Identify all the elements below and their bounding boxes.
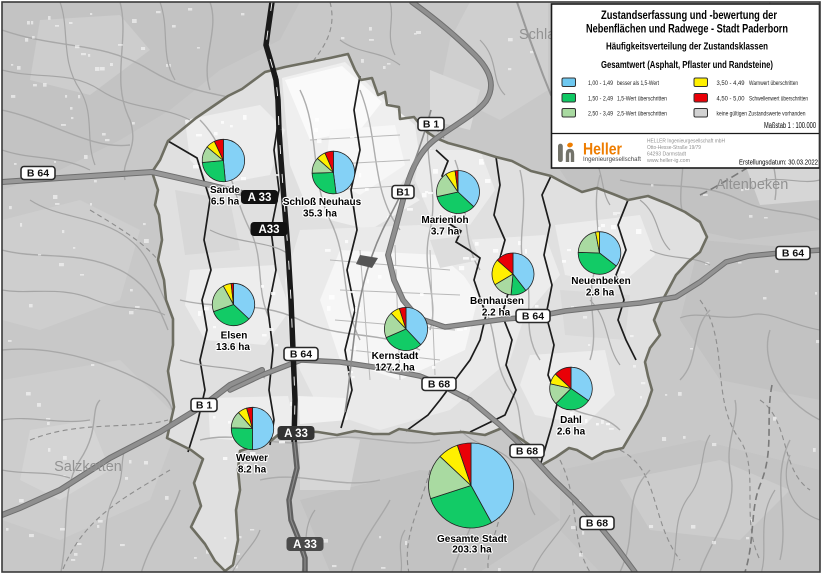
svg-text:35.3 ha: 35.3 ha — [303, 209, 337, 220]
svg-text:Dahl: Dahl — [560, 415, 582, 426]
svg-text:Häufigkeitsverteilung der Zust: Häufigkeitsverteilung der Zustandsklasse… — [606, 42, 768, 53]
svg-text:keine gültigen Zustandswerte v: keine gültigen Zustandswerte vorhanden — [717, 111, 806, 118]
svg-text:8.2 ha: 8.2 ha — [238, 465, 267, 476]
svg-text:3,50 - 4,49: 3,50 - 4,49 — [717, 80, 745, 87]
svg-text:2,50 - 3,49: 2,50 - 3,49 — [588, 111, 613, 118]
svg-text:Wewer: Wewer — [236, 453, 268, 464]
svg-text:B 64: B 64 — [782, 248, 804, 260]
svg-text:B 68: B 68 — [428, 379, 450, 391]
svg-text:B 64: B 64 — [522, 311, 544, 323]
svg-text:B 68: B 68 — [586, 518, 608, 530]
svg-text:Sande: Sande — [210, 185, 240, 196]
svg-text:Otto-Hesse-Straße 19/79: Otto-Hesse-Straße 19/79 — [647, 145, 701, 151]
svg-text:1,00 - 1,49: 1,00 - 1,49 — [588, 80, 613, 87]
svg-text:2,5-Wert überschritten: 2,5-Wert überschritten — [617, 111, 667, 118]
svg-text:B 1: B 1 — [423, 119, 440, 131]
svg-text:A33: A33 — [258, 224, 279, 236]
svg-text:B 64: B 64 — [27, 168, 49, 180]
svg-text:B1: B1 — [396, 187, 410, 199]
svg-text:64293 Darmstadt: 64293 Darmstadt — [647, 152, 686, 158]
svg-text:B 1: B 1 — [196, 400, 213, 412]
svg-text:Ingenieurgesellschaft: Ingenieurgesellschaft — [583, 157, 641, 163]
svg-text:B 68: B 68 — [516, 446, 538, 458]
svg-text:Gesamte Stadt: Gesamte Stadt — [437, 534, 508, 545]
svg-text:1,50 - 2,49: 1,50 - 2,49 — [588, 96, 613, 103]
svg-text:1,5-Wert überschritten: 1,5-Wert überschritten — [617, 96, 667, 103]
svg-text:Salzkotten: Salzkotten — [54, 459, 122, 475]
svg-text:3.7 ha: 3.7 ha — [431, 227, 460, 238]
svg-text:4,50 - 5,00: 4,50 - 5,00 — [717, 96, 745, 103]
svg-text:Maßstab 1 : 100.000: Maßstab 1 : 100.000 — [764, 121, 816, 130]
svg-text:besser als 1,5-Wert: besser als 1,5-Wert — [617, 80, 659, 87]
svg-text:Warnwert überschritten: Warnwert überschritten — [749, 80, 798, 87]
svg-text:Nebenflächen und Radwege - Sta: Nebenflächen und Radwege - Stadt Paderbo… — [586, 24, 788, 36]
svg-text:Benhausen: Benhausen — [470, 296, 524, 307]
svg-text:2.8 ha: 2.8 ha — [586, 288, 615, 299]
svg-text:HELLER Ingenieurgesellschaft m: HELLER Ingenieurgesellschaft mbH — [647, 139, 725, 145]
svg-text:B 64: B 64 — [290, 349, 312, 361]
svg-text:A 33: A 33 — [293, 539, 317, 551]
svg-text:Neuenbeken: Neuenbeken — [571, 276, 630, 287]
svg-text:www.heller-ig.com: www.heller-ig.com — [646, 158, 690, 164]
svg-text:2.6 ha: 2.6 ha — [557, 427, 586, 438]
svg-text:Schloß Neuhaus: Schloß Neuhaus — [283, 197, 362, 208]
svg-text:Zustandserfassung und -bewertu: Zustandserfassung und -bewertung der — [601, 10, 777, 22]
svg-text:Gesamtwert (Asphalt, Pflaster: Gesamtwert (Asphalt, Pflaster und Randst… — [601, 60, 773, 71]
svg-text:Erstellungsdatum: 30.03.2022: Erstellungsdatum: 30.03.2022 — [739, 158, 818, 167]
svg-text:Altenbeken: Altenbeken — [716, 177, 789, 193]
svg-text:Kernstadt: Kernstadt — [372, 351, 419, 362]
svg-text:Marienloh: Marienloh — [421, 215, 468, 226]
svg-text:Schwellenwert überschritten: Schwellenwert überschritten — [749, 96, 808, 103]
svg-text:Heller: Heller — [583, 141, 622, 159]
svg-text:127.2 ha: 127.2 ha — [375, 363, 415, 374]
svg-text:2.2 ha: 2.2 ha — [482, 308, 511, 319]
svg-text:A 33: A 33 — [284, 428, 308, 440]
svg-text:Elsen: Elsen — [221, 331, 248, 342]
svg-text:A 33: A 33 — [248, 192, 272, 204]
svg-text:203.3 ha: 203.3 ha — [452, 545, 492, 556]
svg-text:13.6 ha: 13.6 ha — [216, 342, 250, 353]
svg-text:6.5 ha: 6.5 ha — [211, 197, 240, 208]
